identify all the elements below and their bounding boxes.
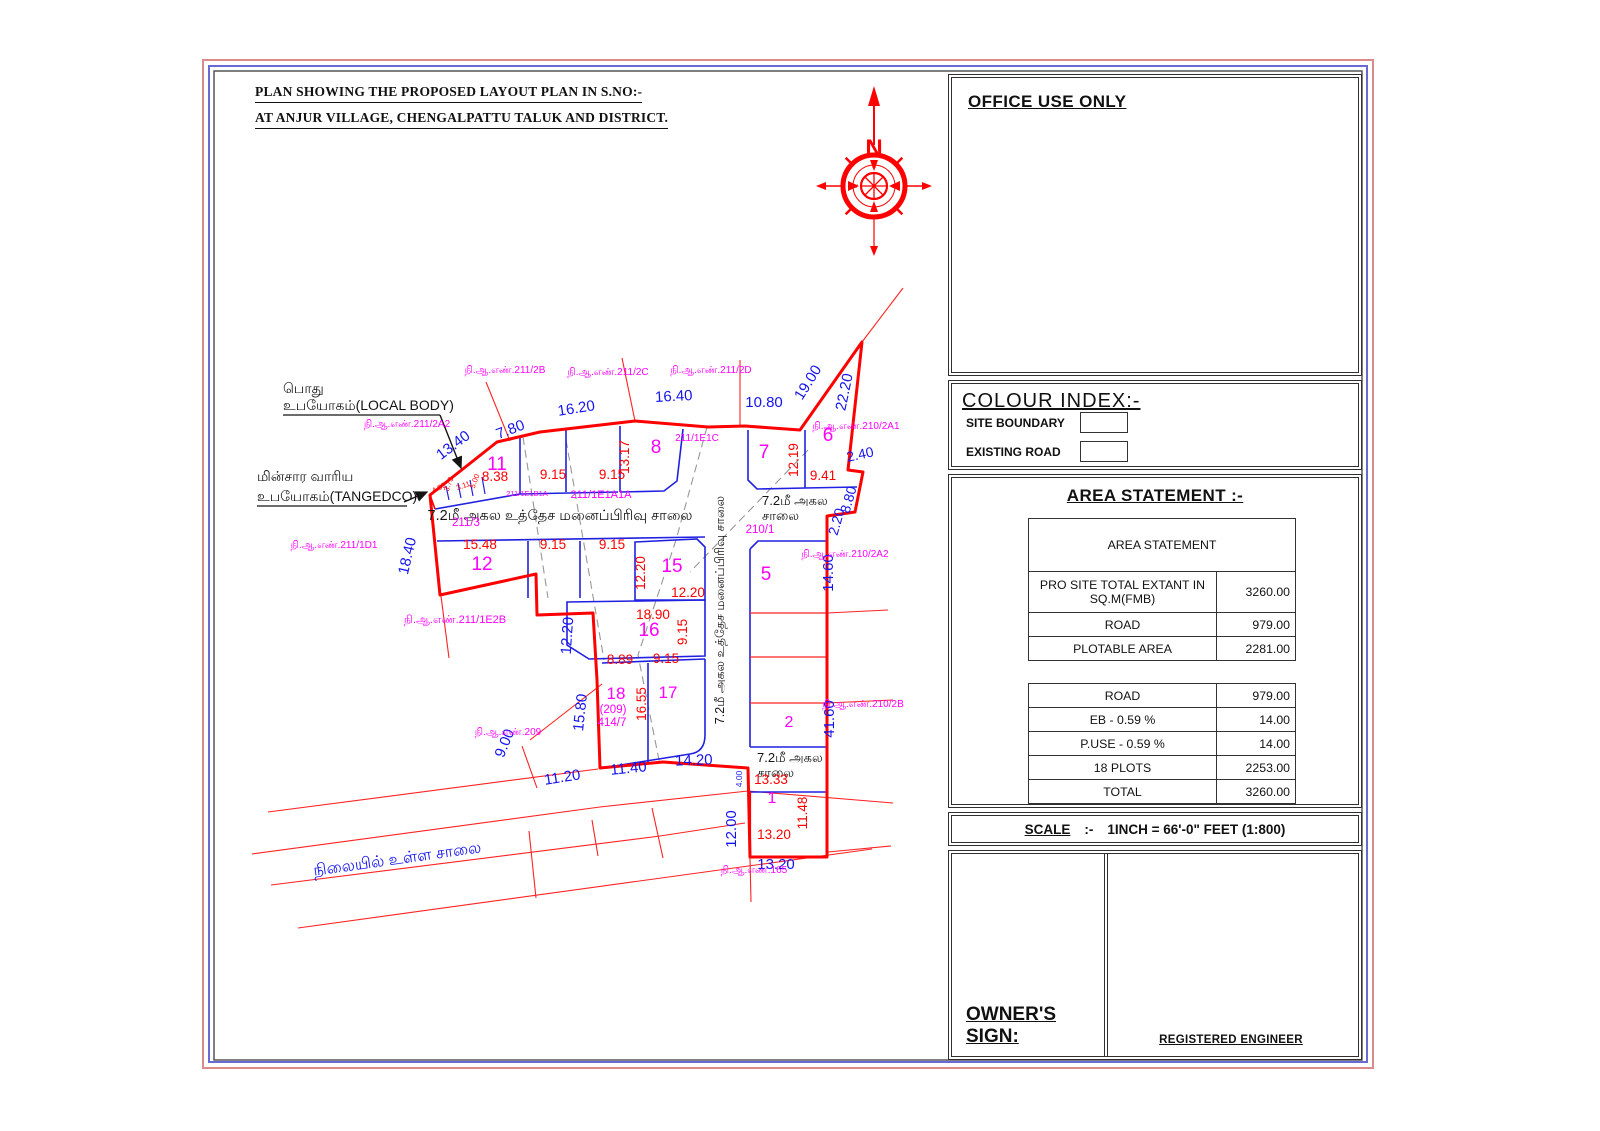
engineer-sign-cell: REGISTERED ENGINEER: [1104, 854, 1358, 1056]
plot-8: 8: [651, 437, 662, 458]
road-label-7b: சாலை: [762, 508, 799, 523]
road-label-vertical: 7.2மீ அகல உத்தேச மனைப்பிரிவு சாலை: [713, 495, 727, 724]
dim-9-15-e: 9.15: [675, 619, 690, 645]
dim-12-20-red: 12.20: [671, 585, 705, 600]
page-title-line2: AT ANJUR VILLAGE, CHENGALPATTU TALUK AND…: [255, 110, 668, 129]
row-label: P.USE - 0.59 %: [1029, 732, 1217, 756]
table-row: PRO SITE TOTAL EXTANT IN SQ.M(FMB) 3260.…: [1029, 572, 1296, 613]
dim-13-17: 13.17: [617, 440, 632, 474]
table-row: ROAD 979.00: [1029, 613, 1296, 637]
row-value: 979.00: [1217, 684, 1296, 708]
dim-11-40: 11.40: [610, 758, 648, 779]
plot-18-414-7: 414/7: [598, 717, 627, 729]
compass-dir-e: E: [892, 184, 896, 190]
plot-5: 5: [761, 564, 772, 585]
dim-11-20: 11.20: [543, 766, 582, 788]
signature-box: OWNER'S SIGN: REGISTERED ENGINEER: [948, 850, 1362, 1060]
colour-index-row-site-boundary: SITE BOUNDARY: [966, 412, 1128, 433]
survey-211-1E1B1A: 211/1E1B1A: [506, 489, 548, 498]
plot-15: 15: [661, 556, 682, 577]
scale-colon: :-: [1084, 822, 1093, 837]
row-label: EB - 0.59 %: [1029, 708, 1217, 732]
plot-16: 16: [638, 620, 659, 641]
dim-14-20: 14.20: [675, 751, 713, 769]
row-label: TOTAL: [1029, 780, 1217, 804]
dim-3-73: 3.73: [442, 476, 455, 493]
registered-engineer-label: REGISTERED ENGINEER: [1104, 1034, 1358, 1046]
table-row: EB - 0.59 % 14.00: [1029, 708, 1296, 732]
area-statement-table: AREA STATEMENT PRO SITE TOTAL EXTANT IN …: [1028, 518, 1296, 804]
survey-210-1: 210/1: [746, 524, 775, 536]
survey-211-1E1C: 211/1E1C: [675, 433, 719, 444]
plot-block-row-lines: [750, 613, 827, 703]
survey-210-2A2: நி.ஆ.எண்.210/2A2: [801, 549, 888, 560]
compass-dir-w: W: [852, 184, 858, 190]
survey-211-1E2B: நி.ஆ.எண்.211/1E2B: [404, 614, 506, 626]
table-row: PLOTABLE AREA 2281.00: [1029, 637, 1296, 661]
row-value: 3260.00: [1217, 780, 1296, 804]
scale-box: SCALE :- 1INCH = 66'-0" FEET (1:800): [948, 812, 1362, 846]
dim-19-00: 19.00: [791, 362, 825, 403]
dim-13-33: 13.33: [754, 772, 788, 787]
road-label-2a: 7.2மீ அகல: [757, 750, 823, 765]
dim-16-20: 16.20: [556, 397, 596, 420]
plot-18-209: (209): [600, 704, 627, 716]
plot-18: 18: [607, 684, 626, 703]
local-body-label-1: பொது: [283, 380, 324, 397]
existing-road-label: நிலையில் உள்ள சாலை: [312, 839, 482, 879]
dim-9-41: 9.41: [810, 468, 836, 483]
row-label: ROAD: [1029, 684, 1217, 708]
row-value: 14.00: [1217, 732, 1296, 756]
dim-11-48: 11.48: [795, 797, 810, 830]
dim-13-40: 13.40: [433, 427, 473, 463]
dim-5-00: 5.00: [468, 473, 481, 490]
existing-road-label: EXISTING ROAD: [966, 445, 1074, 459]
dim-15-80: 15.80: [570, 693, 591, 732]
plan-labels: பொதுஉபயோகம்(LOCAL BODY)மின்சார வாரியஉபயோ…: [257, 362, 904, 880]
row-value: 2253.00: [1217, 756, 1296, 780]
survey-211-2C: நி.ஆ.எண்.211/2C: [567, 367, 648, 378]
row-value: 3260.00: [1217, 572, 1296, 613]
owner-sign-cell: OWNER'S SIGN:: [952, 854, 1108, 1056]
site-boundary-label: SITE BOUNDARY: [966, 416, 1074, 430]
colour-index-row-existing-road: EXISTING ROAD: [966, 441, 1128, 462]
title-block: PLAN SHOWING THE PROPOSED LAYOUT PLAN IN…: [255, 84, 668, 136]
site-boundary-swatch: [1080, 412, 1128, 433]
compass-north-letter: N: [865, 135, 882, 162]
plot-1: 1: [768, 790, 777, 807]
table-row: TOTAL 3260.00: [1029, 780, 1296, 804]
table-row: ROAD 979.00: [1029, 684, 1296, 708]
survey-209: நி.ஆ.எண்.209: [475, 727, 542, 738]
colour-index-title: COLOUR INDEX:-: [962, 390, 1140, 413]
dim-8-89: 8.89: [607, 652, 633, 667]
row-label: PLOTABLE AREA: [1029, 637, 1217, 661]
row-label: PRO SITE TOTAL EXTANT IN SQ.M(FMB): [1029, 572, 1217, 613]
compass: N N E S W: [816, 86, 932, 256]
dim-12-20-red-v: 12.20: [633, 556, 648, 590]
table-row: AREA STATEMENT: [1029, 519, 1296, 572]
dim-12-00: 12.00: [723, 810, 740, 848]
scale-row: SCALE :- 1INCH = 66'-0" FEET (1:800): [952, 816, 1358, 842]
dim-2-20: 2.20: [825, 506, 848, 537]
dim-15-48: 15.48: [463, 537, 497, 552]
dim-18-40: 18.40: [395, 536, 420, 576]
plot-11: 11: [487, 454, 507, 475]
survey-211-3: 211/3: [452, 517, 480, 529]
existing-road-swatch: [1080, 441, 1128, 462]
dim-16-55: 16.55: [634, 687, 649, 721]
row-label: ROAD: [1029, 613, 1217, 637]
table-title-cell: AREA STATEMENT: [1029, 519, 1296, 572]
dim-16-40: 16.40: [655, 387, 693, 406]
office-use-title: OFFICE USE ONLY: [968, 92, 1126, 112]
row-value: 2281.00: [1217, 637, 1296, 661]
dim-12-19: 12.19: [786, 443, 801, 477]
local-body-label-2: உபயோகம்(LOCAL BODY): [283, 397, 454, 413]
dim-9-15-d: 9.15: [599, 537, 625, 552]
survey-210-2B: நி.ஆ.எண்.210/2B: [822, 699, 904, 710]
owner-sign-label: OWNER'S SIGN:: [966, 1004, 1104, 1048]
office-use-box: OFFICE USE ONLY: [948, 74, 1362, 376]
dim-12-20-blue: 12.20: [558, 616, 578, 655]
scale-label: SCALE: [1025, 822, 1071, 837]
row-value: 14.00: [1217, 708, 1296, 732]
tangedco-label-1: மின்சார வாரிய: [257, 468, 353, 484]
spacer-cell: [1029, 661, 1296, 684]
survey-211-2A2: நி.ஆ.எண்.211/2A2: [364, 419, 451, 430]
dim-4-00: 4.00: [734, 770, 744, 787]
survey-211-1E1A1A: 211/1E1A1A: [571, 489, 633, 501]
plot-12: 12: [471, 554, 492, 575]
tangedco-label-2: உபயோகம்(TANGEDCO): [257, 488, 417, 504]
page-title-line1: PLAN SHOWING THE PROPOSED LAYOUT PLAN IN…: [255, 84, 642, 103]
scale-value: 1INCH = 66'-0" FEET (1:800): [1107, 822, 1285, 837]
area-statement-box: AREA STATEMENT :- AREA STATEMENT PRO SIT…: [948, 474, 1362, 808]
compass-dir-s: S: [872, 205, 876, 211]
compass-dir-n: N: [872, 164, 876, 170]
plot-7: 7: [759, 442, 770, 463]
survey-211-2B: நி.ஆ.எண்.211/2B: [465, 365, 546, 376]
survey-210-2A1: நி.ஆ.எண்.210/2A1: [812, 421, 899, 432]
row-label: 18 PLOTS: [1029, 756, 1217, 780]
dim-9-15-f: 9.15: [653, 651, 679, 666]
dim-9-15-a: 9.15: [540, 467, 566, 482]
plot-17: 17: [659, 683, 678, 702]
dim-10-80: 10.80: [745, 394, 783, 411]
area-statement-heading: AREA STATEMENT :-: [952, 486, 1358, 506]
survey-211-1D1: நி.ஆ.எண்.211/1D1: [291, 540, 378, 551]
plot-2: 2: [785, 714, 794, 731]
survey-211-2D: நி.ஆ.எண்.211/2D: [670, 365, 751, 376]
survey-165: நி.ஆ.எண்.165: [721, 865, 788, 876]
table-row: P.USE - 0.59 % 14.00: [1029, 732, 1296, 756]
road-label-7a: 7.2மீ அகல: [762, 493, 828, 508]
colour-index-box: COLOUR INDEX:- SITE BOUNDARY EXISTING RO…: [948, 380, 1362, 470]
dim-9-15-c: 9.15: [540, 537, 566, 552]
row-value: 979.00: [1217, 613, 1296, 637]
table-row: 18 PLOTS 2253.00: [1029, 756, 1296, 780]
table-spacer-row: [1029, 661, 1296, 684]
dim-13-20-red: 13.20: [757, 827, 791, 842]
